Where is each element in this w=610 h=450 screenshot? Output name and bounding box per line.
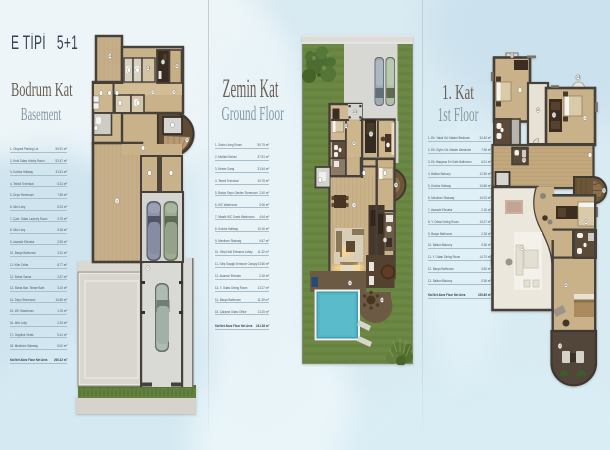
svg-text:1: 1	[147, 266, 149, 270]
svg-text:11: 11	[564, 283, 568, 287]
svg-text:2: 2	[553, 113, 555, 117]
svg-text:10: 10	[353, 110, 357, 114]
svg-text:11: 11	[536, 108, 540, 112]
svg-text:14: 14	[380, 298, 384, 302]
svg-text:4: 4	[559, 344, 561, 348]
svg-text:13: 13	[146, 66, 150, 70]
svg-text:1: 1	[584, 116, 586, 120]
svg-text:3: 3	[152, 90, 154, 94]
svg-text:4: 4	[349, 281, 351, 285]
svg-text:1: 1	[353, 203, 355, 207]
svg-text:4: 4	[521, 246, 523, 250]
svg-text:10: 10	[510, 54, 514, 58]
svg-text:5: 5	[523, 158, 525, 162]
svg-text:9: 9	[186, 138, 188, 142]
svg-text:8: 8	[353, 141, 355, 145]
svg-text:6: 6	[603, 189, 605, 193]
svg-text:13: 13	[576, 75, 580, 79]
svg-text:13: 13	[344, 124, 348, 128]
svg-text:2: 2	[116, 199, 118, 203]
svg-text:8: 8	[585, 220, 587, 224]
svg-text:14: 14	[108, 54, 112, 58]
svg-text:3: 3	[173, 90, 175, 94]
svg-text:2: 2	[370, 132, 372, 136]
svg-text:11: 11	[175, 64, 179, 68]
svg-text:9: 9	[395, 183, 397, 187]
